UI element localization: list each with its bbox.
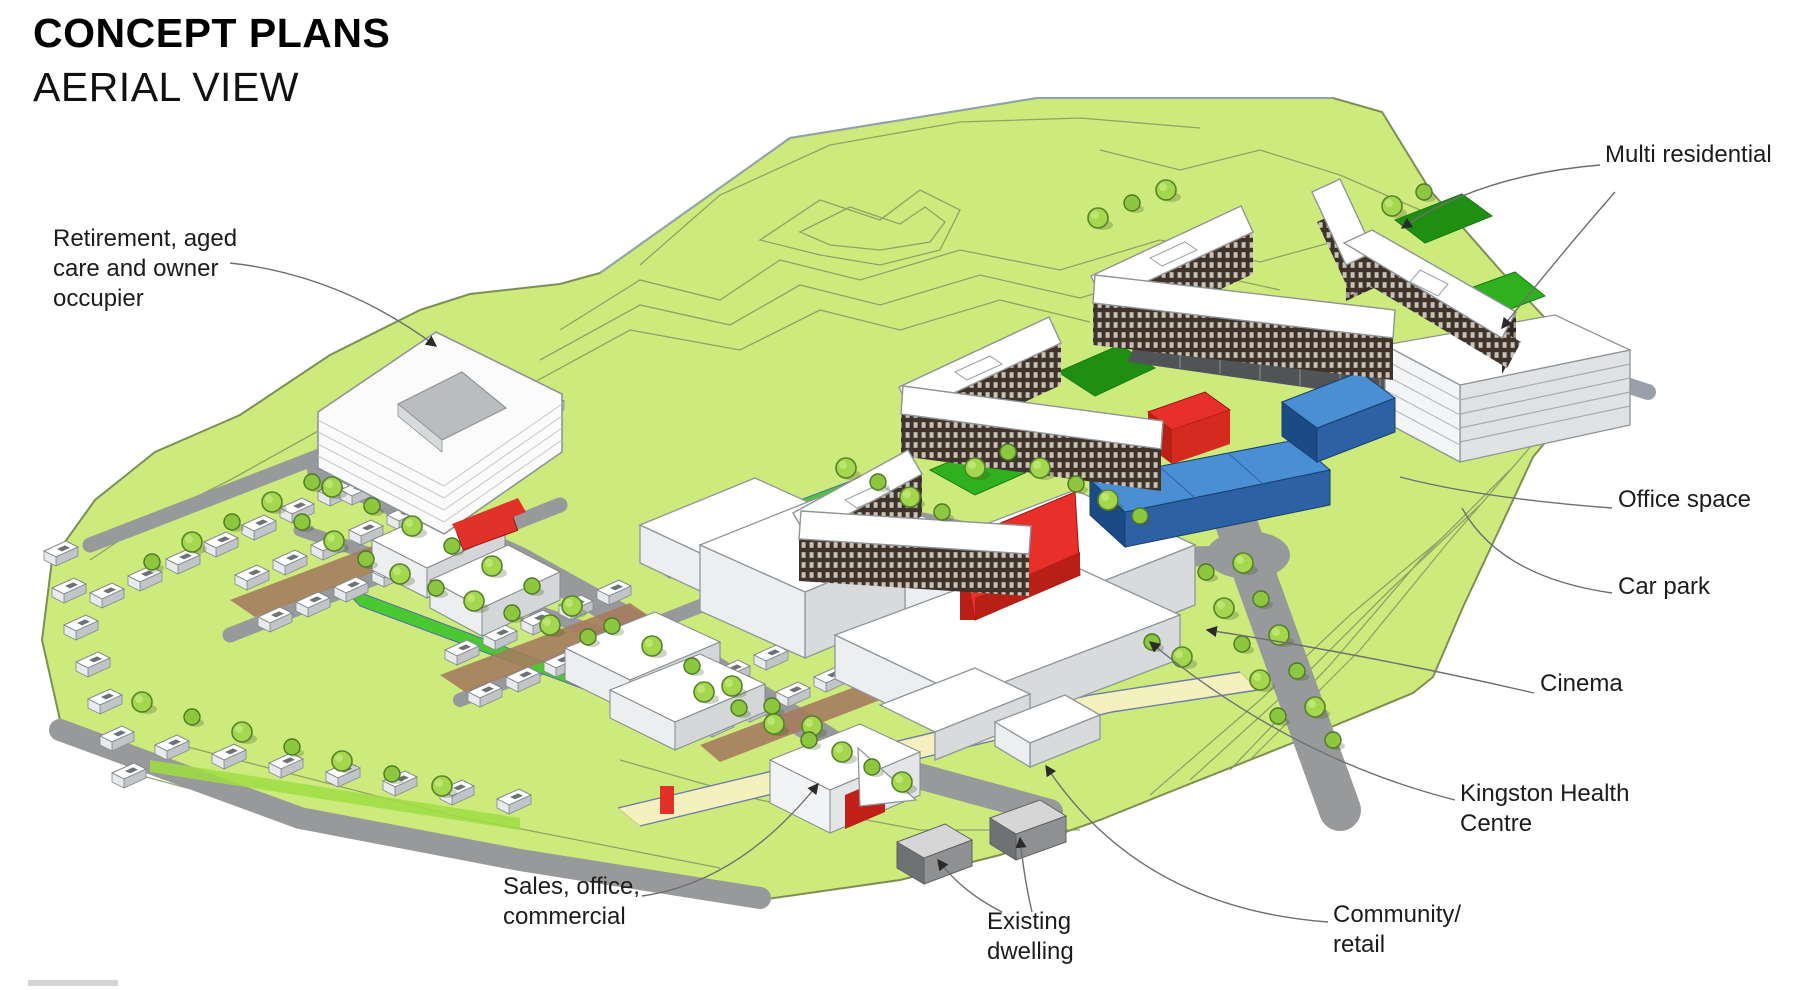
label-kingston-health-centre: Kingston Health Centre: [1460, 779, 1629, 839]
page-title: CONCEPT PLANS: [33, 10, 390, 57]
page-subtitle: AERIAL VIEW: [33, 64, 299, 111]
scan-artifact: [28, 980, 118, 986]
leader-multi-residential-2: [1502, 192, 1615, 328]
label-cinema: Cinema: [1540, 669, 1623, 699]
label-community-retail: Community/ retail: [1333, 900, 1461, 960]
concept-plan-page: CONCEPT PLANS AERIAL VIEW Retirement, ag…: [0, 0, 1800, 990]
label-existing-dwelling: Existing dwelling: [987, 907, 1074, 967]
aerial-view-render: [0, 0, 1800, 990]
label-sales-office-commercial: Sales, office, commercial: [503, 872, 640, 932]
label-office-space: Office space: [1618, 485, 1751, 515]
label-multi-residential: Multi residential: [1605, 140, 1772, 170]
label-car-park: Car park: [1618, 572, 1710, 602]
label-retirement: Retirement, aged care and owner occupier: [53, 224, 237, 314]
